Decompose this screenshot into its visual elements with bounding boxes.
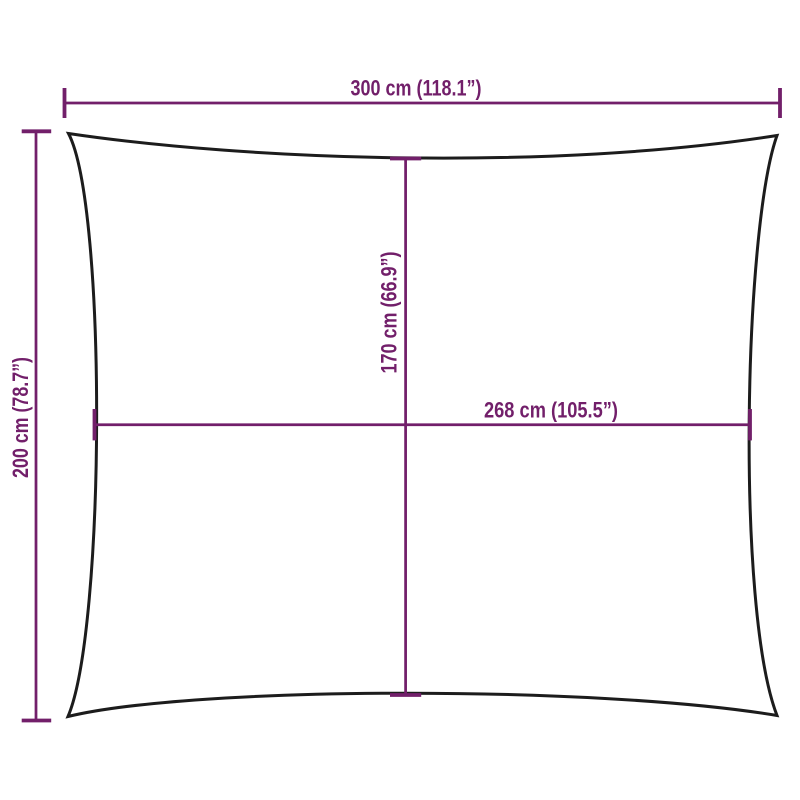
svg-text:268 cm (105.5”): 268 cm (105.5”) [484,398,618,423]
svg-text:200 cm (78.7”): 200 cm (78.7”) [8,357,33,478]
svg-text:170 cm (66.9”): 170 cm (66.9”) [377,252,402,374]
svg-text:300 cm (118.1”): 300 cm (118.1”) [351,76,482,101]
